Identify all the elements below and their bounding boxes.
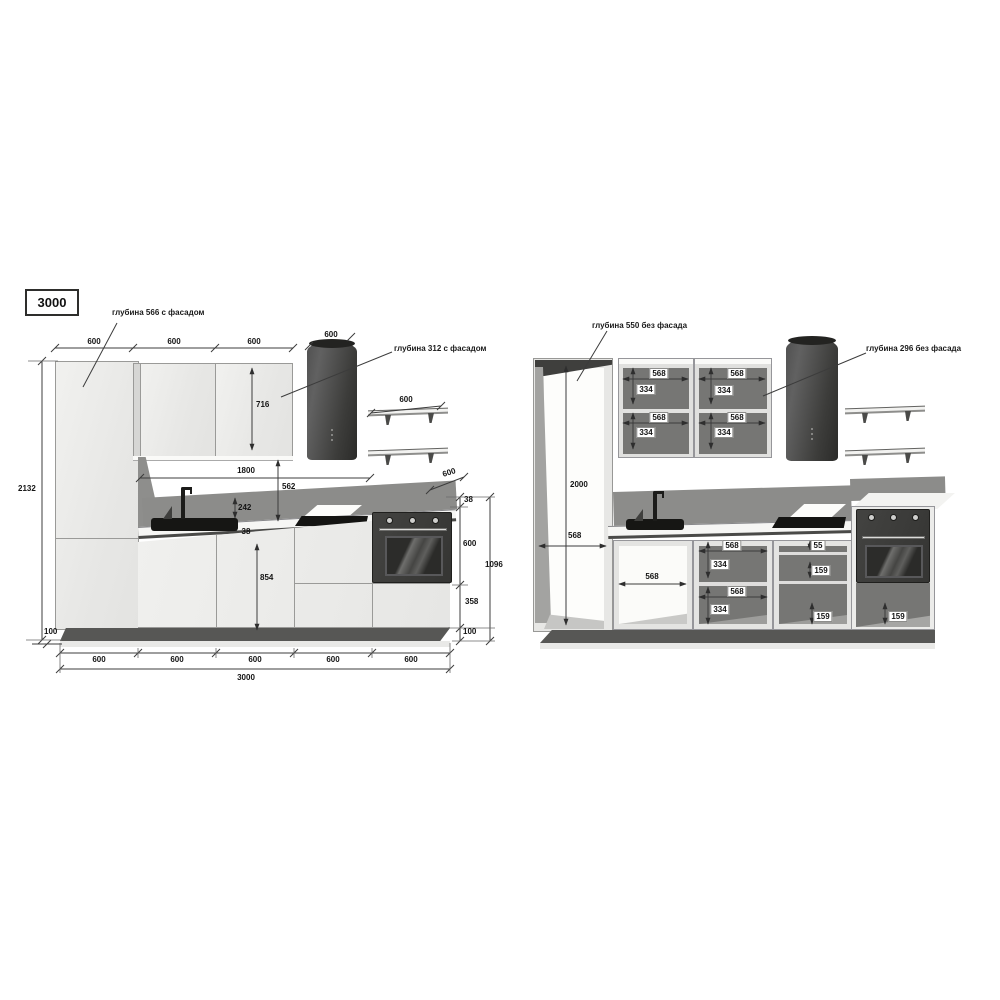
dim-base-top-h: 334	[710, 559, 729, 570]
dim-oven-height: 600	[463, 539, 476, 548]
dim-plinth-left: 100	[44, 627, 57, 636]
dim-top-600-3: 600	[247, 337, 260, 346]
kitchen-technical-drawing: 3000 глубина 566 с фасадом глубина 312 с…	[0, 0, 1000, 1000]
callout-depth-tall-carcass: глубина 550 без фасада	[592, 321, 687, 330]
dim-wall-cab-height: 716	[256, 400, 269, 409]
dim-top-600-1: 600	[87, 337, 100, 346]
dim-562: 562	[282, 482, 295, 491]
dim-total-width: 3000	[237, 673, 255, 682]
dim-drawer-bottom: 159	[813, 611, 832, 622]
dim-38-counter: 38	[242, 527, 251, 536]
dim-wall-b-top-h: 334	[714, 385, 733, 396]
dim-bottom-600-3: 600	[248, 655, 261, 664]
dim-base-bot-w: 568	[727, 586, 746, 597]
dim-sink-carcass-width: 568	[645, 572, 658, 581]
dim-wall-b-bot-h: 334	[714, 427, 733, 438]
dim-span-1800: 1800	[237, 466, 255, 475]
dim-drawer-mid: 159	[811, 565, 830, 576]
dim-top-600-2: 600	[167, 337, 180, 346]
dim-total-height: 2132	[18, 484, 36, 493]
dim-hood-width: 600	[324, 330, 337, 339]
dim-wall-a-top-w: 568	[649, 368, 668, 379]
dim-358: 358	[465, 597, 478, 606]
dim-bottom-600-5: 600	[404, 655, 417, 664]
dim-drawer-top: 55	[811, 540, 826, 551]
dim-wall-a-bot-h: 334	[636, 427, 655, 438]
dim-wall-b-bot-w: 568	[727, 412, 746, 423]
dim-38-right: 38	[464, 495, 473, 504]
dim-wall-b-top-w: 568	[727, 368, 746, 379]
callout-leader-lines	[83, 323, 866, 397]
dim-1096: 1096	[485, 560, 503, 569]
dimension-lines	[0, 0, 1000, 1000]
dim-shelf-width: 600	[399, 395, 412, 404]
callout-depth-wall: глубина 312 с фасадом	[394, 344, 486, 353]
dim-wall-a-bot-w: 568	[649, 412, 668, 423]
dim-base-bot-h: 334	[710, 604, 729, 615]
total-width-title: 3000	[25, 289, 79, 316]
dim-tall-interior-height: 2000	[570, 480, 588, 489]
dim-bottom-600-2: 600	[170, 655, 183, 664]
dim-bottom-600-4: 600	[326, 655, 339, 664]
dim-base-top-w: 568	[722, 540, 741, 551]
callout-depth-tall: глубина 566 с фасадом	[112, 308, 204, 317]
dim-242: 242	[238, 503, 251, 512]
callout-depth-wall-carcass: глубина 296 без фасада	[866, 344, 961, 353]
dim-wall-a-top-h: 334	[636, 384, 655, 395]
dim-tall-interior-width: 568	[568, 531, 581, 540]
dim-854: 854	[260, 573, 273, 582]
dim-bottom-600-1: 600	[92, 655, 105, 664]
dim-oven-drawer: 159	[888, 611, 907, 622]
dim-plinth-right: 100	[463, 627, 476, 636]
